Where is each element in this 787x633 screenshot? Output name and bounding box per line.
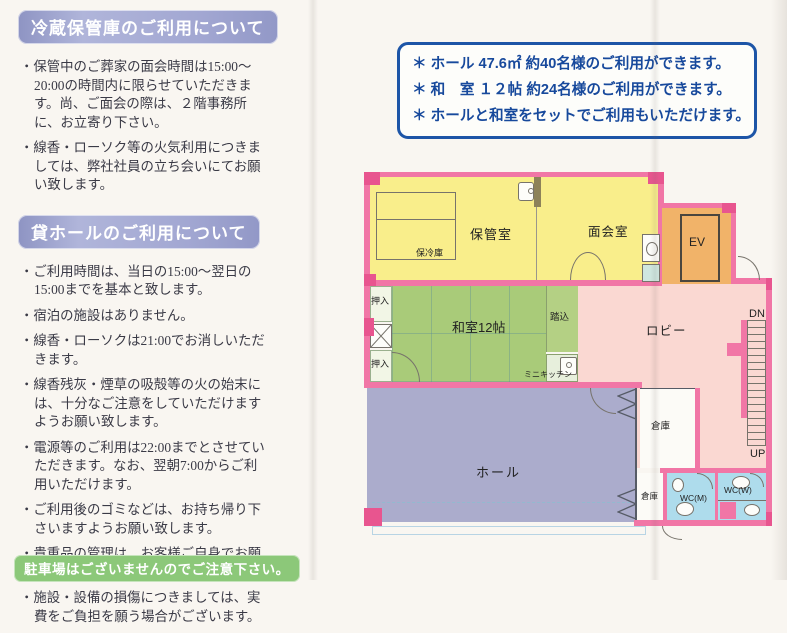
- porch-outline: [372, 526, 646, 535]
- section-title-cold-storage: 冷蔵保管庫のご利用について: [18, 10, 278, 44]
- label-storage-room: 保管室: [470, 228, 512, 242]
- entry-door-arc: [738, 256, 760, 280]
- fold-crease: [308, 0, 318, 580]
- wall: [364, 172, 370, 284]
- wall-corner: [364, 318, 374, 336]
- label-meeting-room: 面会室: [588, 226, 629, 240]
- list-item: ・施設・設備の損傷につきましては、実費をご負担を願う場合がございます。: [20, 589, 270, 626]
- wall: [364, 172, 664, 177]
- folding-door-icon: [617, 488, 637, 520]
- wall: [741, 320, 747, 418]
- list-item: ＊ ホールと和室をセットでご利用もいただけます。: [412, 103, 744, 129]
- label-stairs-down: DN: [749, 308, 765, 320]
- toilet: [676, 502, 694, 516]
- toilet-box: [642, 234, 660, 262]
- list-item: ・ご利用後のゴミなどは、お持ち帰り下さいますようお願い致します。: [20, 501, 270, 538]
- list-item: ・宿泊の施設はありません。: [20, 307, 270, 326]
- wall: [695, 388, 700, 468]
- label-mini-kitchen: ミニキッチン: [524, 371, 572, 380]
- wash-cell: [642, 264, 660, 282]
- list-item: ・線香残灰・煙草の吸殻等の火の始末には、十分なご注意をしていただけますようお願い…: [20, 376, 270, 432]
- label-wc-men: WC(M): [680, 494, 707, 503]
- wall-corner: [766, 512, 772, 526]
- left-column: 冷蔵保管庫のご利用について ・保管中のご葬家の面会時間は15:00～20:00の…: [16, 10, 288, 633]
- wall-corner: [722, 203, 736, 213]
- duct-block: [534, 177, 541, 207]
- wall: [766, 278, 772, 526]
- label-cold-storage: 保冷庫: [416, 249, 443, 259]
- parking-notice: 駐車場はございませんのでご注意下さい。: [14, 555, 300, 582]
- label-closet-bottom: 押入: [371, 360, 389, 370]
- wall-corner: [364, 274, 376, 286]
- label-fumikomi: 踏込: [550, 313, 569, 323]
- label-japanese-room: 和室12帖: [452, 321, 505, 335]
- label-storage-small: 倉庫: [641, 492, 658, 501]
- folding-door-icon: [617, 388, 637, 420]
- wall-corner: [648, 172, 664, 184]
- label-hall: ホール: [476, 466, 521, 480]
- list-item: ・保管中のご葬家の面会時間は15:00～20:00の時間内に限らせていただきます…: [20, 58, 270, 132]
- capacity-info-box: ＊ ホール 47.6㎡ 約40名様のご利用ができます。＊ 和 室 １２帖 約24…: [397, 42, 757, 139]
- list-item: ・ご利用時間は、当日の15:00～翌日の15:00までを基本と致します。: [20, 263, 270, 300]
- wall: [364, 280, 662, 286]
- section-title-rental-hall: 貸ホールのご利用について: [18, 215, 260, 249]
- wall-corner: [364, 172, 380, 185]
- label-wc-women: WC(W): [724, 486, 752, 495]
- list-item: ＊ 和 室 １２帖 約24名様のご利用ができます。: [412, 77, 744, 103]
- wall: [715, 473, 718, 520]
- toilet: [744, 504, 760, 516]
- label-closet-top: 押入: [371, 297, 389, 307]
- wall: [727, 343, 747, 356]
- urinal: [672, 478, 684, 492]
- list-item: ・線香・ローソク等の火気利用につきましては、弊社社員の立ち会いにてお願い致します…: [20, 139, 270, 195]
- list-item: ・電源等のご利用は22:00までとさせていただきます。なお、翌朝7:00からご利…: [20, 439, 270, 495]
- wc-pink-block: [720, 502, 736, 519]
- shaft-x-icon: [371, 325, 391, 347]
- floor-plan: 保管室 保冷庫 面会室 EV 押入 押入 和室12帖 踏込 ミニキッチン ロビー…: [364, 170, 776, 542]
- wc-partition: [718, 500, 766, 501]
- label-elevator: EV: [689, 236, 705, 249]
- cold-storage-rules-list: ・保管中のご葬家の面会時間は15:00～20:00の時間内に限らせていただきます…: [16, 58, 270, 195]
- hall-guide-line: [372, 502, 630, 503]
- label-storage-large: 倉庫: [651, 422, 670, 432]
- wall: [731, 206, 736, 284]
- wall: [663, 473, 667, 520]
- wall-corner: [364, 508, 382, 526]
- entrance-door-arc: [662, 526, 682, 540]
- list-item: ・線香・ローソクは21:00でお消しいただきます。: [20, 332, 270, 369]
- label-stairs-up: UP: [750, 448, 765, 460]
- list-item: ＊ ホール 47.6㎡ 約40名様のご利用ができます。: [412, 51, 744, 77]
- wall: [634, 520, 772, 526]
- wall-corner: [766, 278, 772, 290]
- sink: [518, 182, 534, 201]
- label-lobby: ロビー: [646, 325, 687, 339]
- staircase: [747, 320, 766, 446]
